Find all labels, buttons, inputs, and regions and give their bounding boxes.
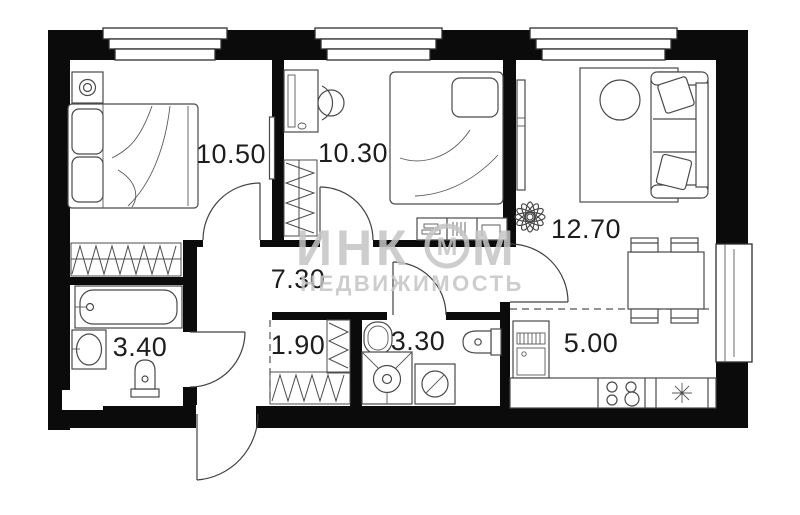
room-bedroom1: 10.50	[68, 72, 275, 276]
plant	[515, 202, 545, 232]
bathroom-area-label: 3.40	[113, 332, 168, 362]
bathtub	[75, 286, 182, 328]
room-wc: 3.30	[362, 322, 501, 404]
closet-area-label: 1.90	[271, 330, 326, 360]
door-bathroom	[190, 332, 245, 387]
closet-wardrobe-horizontal	[270, 372, 350, 404]
room-living: 12.70	[515, 68, 708, 244]
toilet-bathroom	[131, 360, 159, 397]
window-bedroom1	[103, 28, 227, 60]
coffee-table	[600, 80, 640, 120]
desk-chair	[318, 86, 344, 120]
tv-unit-living	[517, 80, 525, 190]
room-bedroom2: 10.30	[284, 70, 507, 240]
watermark-brand-prefix: ИНК	[296, 220, 411, 276]
room-kitchen: 5.00	[510, 238, 716, 408]
door-entrance	[196, 405, 258, 480]
door-bedroom1	[203, 183, 260, 240]
floor-plan-page: 10.50	[0, 0, 800, 515]
watermark-logo-letter: М	[437, 233, 458, 261]
watermark-brand-suffix: М	[472, 220, 514, 276]
nightstand	[72, 72, 103, 103]
wardrobe-bedroom1	[71, 243, 181, 276]
room-closet: 1.90	[270, 320, 350, 404]
single-bed	[390, 72, 503, 204]
room-bathroom: 3.40	[72, 286, 182, 397]
wc-sink	[364, 322, 392, 354]
wall-niche	[62, 390, 103, 410]
dining-chair	[631, 309, 658, 323]
toilet-wc	[463, 329, 501, 355]
dining-chair	[671, 309, 698, 323]
bathroom-sink	[72, 330, 106, 369]
closet-wardrobe-vertical	[327, 320, 350, 373]
sofa-pillow-bottom	[656, 154, 692, 190]
bedroom2-area-label: 10.30	[318, 138, 388, 168]
kitchen-counter	[510, 378, 716, 408]
wc-area-label: 3.30	[391, 326, 446, 356]
desk	[284, 70, 318, 132]
shower	[362, 352, 412, 404]
sofa	[651, 72, 708, 198]
watermark: ИНК М М НЕДВИЖИМОСТЬ	[296, 220, 524, 296]
washing-machine	[415, 364, 455, 404]
oven-unit	[513, 321, 549, 378]
dining-chair	[671, 238, 698, 252]
floor-plan: 10.50	[0, 0, 800, 515]
double-bed	[68, 104, 198, 208]
sink-symbol	[672, 383, 692, 403]
watermark-subtitle: НЕДВИЖИМОСТЬ	[300, 271, 524, 296]
bedroom1-area-label: 10.50	[196, 139, 266, 169]
dining-table	[628, 238, 704, 323]
window-living-room	[530, 28, 677, 60]
window-bedroom2	[315, 28, 442, 60]
living-area-label: 12.70	[551, 214, 621, 244]
dining-chair	[631, 238, 658, 252]
tv-panel-bedroom1	[270, 117, 275, 179]
kitchen-area-label: 5.00	[564, 328, 619, 358]
window-kitchen-side	[716, 244, 752, 362]
